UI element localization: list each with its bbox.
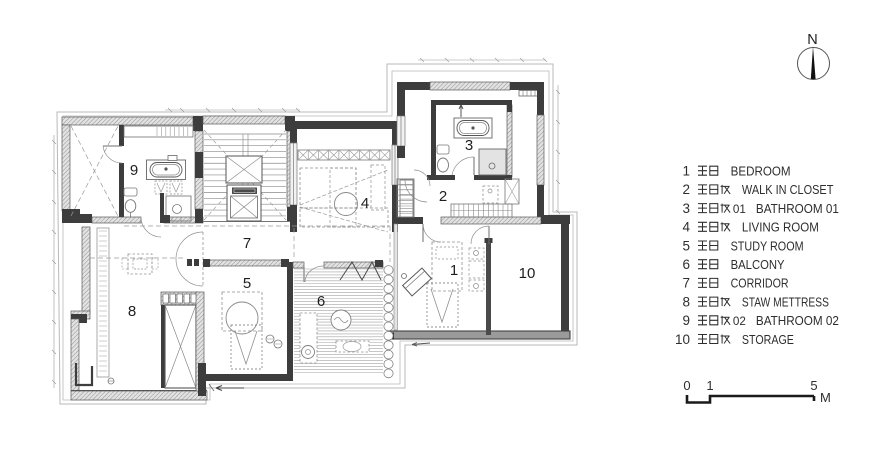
svg-text:9: 9: [682, 313, 690, 328]
svg-text:N: N: [807, 32, 817, 48]
svg-text:7: 7: [243, 235, 251, 252]
svg-text:9: 9: [130, 162, 138, 179]
svg-text:BEDROOM: BEDROOM: [731, 165, 791, 179]
svg-text:M: M: [820, 390, 831, 405]
svg-text:6: 6: [682, 257, 690, 272]
svg-text:WALK IN CLOSET: WALK IN CLOSET: [742, 183, 834, 197]
svg-text:BATHROOM 01: BATHROOM 01: [756, 202, 839, 216]
svg-text:LIVING ROOM: LIVING ROOM: [742, 221, 819, 235]
svg-text:1: 1: [706, 378, 713, 393]
svg-text:STAW METTRESS: STAW METTRESS: [742, 295, 829, 309]
svg-text:4: 4: [361, 195, 369, 212]
svg-text:1: 1: [682, 164, 690, 179]
svg-text:5: 5: [810, 378, 817, 393]
svg-text:2: 2: [682, 182, 690, 197]
svg-text:3: 3: [682, 201, 690, 216]
svg-text:4: 4: [682, 220, 690, 235]
svg-text:BALCONY: BALCONY: [731, 258, 786, 272]
svg-text:6: 6: [317, 293, 325, 310]
svg-text:3: 3: [465, 137, 473, 154]
svg-text:0: 0: [683, 378, 690, 393]
svg-text:2: 2: [439, 188, 447, 205]
svg-text:8: 8: [682, 294, 690, 309]
svg-text:10: 10: [675, 332, 690, 347]
svg-text:01: 01: [733, 202, 746, 216]
svg-text:CORRIDOR: CORRIDOR: [731, 277, 789, 291]
svg-text:1: 1: [450, 262, 458, 279]
svg-text:7: 7: [682, 276, 690, 291]
svg-text:STUDY ROOM: STUDY ROOM: [731, 239, 804, 253]
svg-text:STORAGE: STORAGE: [742, 333, 794, 347]
svg-text:10: 10: [519, 265, 536, 282]
svg-text:5: 5: [243, 275, 251, 292]
svg-text:8: 8: [128, 303, 136, 320]
svg-text:02: 02: [733, 314, 746, 328]
svg-text:BATHROOM 02: BATHROOM 02: [756, 314, 839, 328]
svg-text:5: 5: [682, 238, 690, 253]
